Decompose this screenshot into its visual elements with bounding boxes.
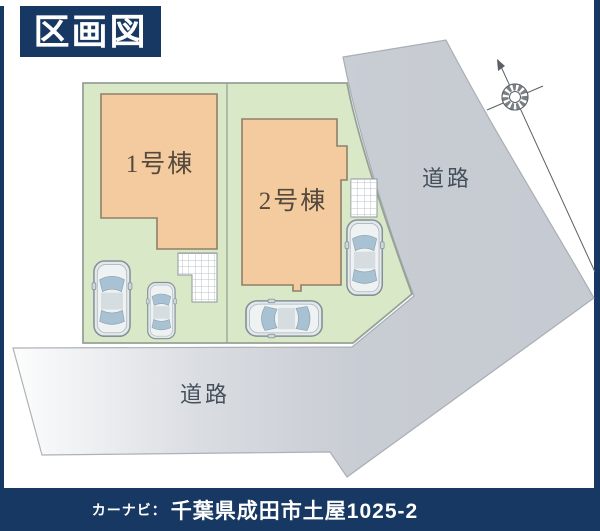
car-navi-address: 千葉県成田市土屋1025-2: [171, 495, 418, 525]
hatch-approach-lot2: [351, 179, 377, 217]
plot-map-diagram: 1号棟 2号棟 道路 道路: [0, 0, 600, 531]
car-navi-prefix: カーナビ：: [92, 500, 167, 520]
car-top-view: [92, 261, 132, 336]
car-top-view: [146, 282, 176, 338]
car-top-view: [345, 220, 384, 295]
road-bottom-label: 道路: [180, 382, 230, 407]
building-1-label: 1号棟: [126, 150, 195, 178]
footer-address-bar: カーナビ： 千葉県成田市土屋1025-2: [0, 488, 600, 531]
car-top-view: [246, 299, 322, 338]
road-right-label: 道路: [422, 166, 472, 191]
building-2-label: 2号棟: [259, 187, 328, 215]
plot-map-page: 区画図: [0, 0, 600, 531]
